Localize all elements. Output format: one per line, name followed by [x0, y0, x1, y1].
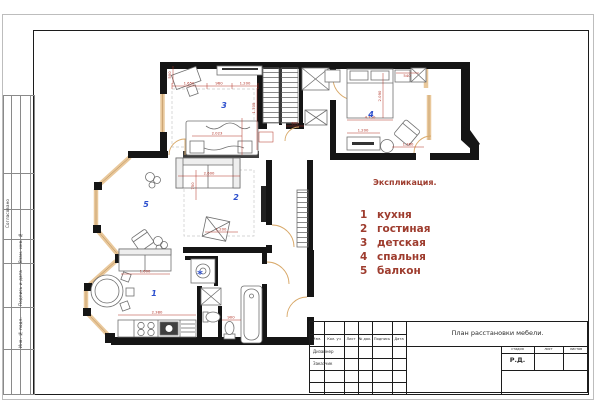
tb-sheet-header: лист — [534, 347, 563, 351]
wardrobe — [281, 68, 298, 123]
hall-closet-x — [305, 110, 327, 125]
legend-item: 5 балкон — [358, 264, 498, 278]
bathtub — [241, 286, 262, 343]
dining-table — [91, 275, 123, 307]
tb-col-izm: Изм. — [310, 337, 324, 341]
dimension-label: 2.600 — [204, 171, 215, 176]
dimension-label: 750 — [190, 182, 195, 190]
tb-stage-value: Р.Д. — [501, 356, 534, 364]
plan-marks: * — [197, 268, 203, 281]
legend-item-name: гостиная — [377, 222, 430, 236]
dimension-label: 1.380 — [403, 142, 414, 147]
dimension-label: 2.023 — [212, 131, 223, 136]
armchair-bay — [131, 229, 154, 252]
washer-asterisk-mark: * — [197, 268, 203, 281]
title-block-line — [310, 358, 406, 359]
title-block-line — [310, 382, 406, 383]
chair — [121, 272, 131, 282]
legend-item-name: балкон — [377, 264, 421, 278]
nightstand — [325, 70, 340, 82]
kitchen-counter — [118, 320, 196, 337]
toilet — [203, 312, 220, 322]
tb-col-list: Лист — [344, 337, 358, 341]
room-number-labels: 34251 — [143, 101, 374, 298]
hall-wardrobe — [297, 190, 308, 247]
legend-item: 3 детская — [358, 236, 498, 250]
chair — [120, 301, 130, 311]
toilet — [224, 322, 235, 340]
title-block: Изм. Кол. уч Лист № док. Подпись Дата Ди… — [309, 321, 588, 393]
dimension-label: 1.200 — [240, 81, 251, 86]
legend-item: 1 кухня — [358, 208, 498, 222]
title-block-line — [501, 353, 589, 354]
title-block-line — [310, 370, 406, 371]
legend-item-number: 4 — [358, 250, 377, 264]
sheet-title: План расстановки мебели. — [406, 329, 589, 337]
legend-items: 1 кухня 2 гостиная 3 детская 4 спальня 5… — [358, 208, 498, 278]
tb-designer-label: Дизайнер — [313, 349, 334, 354]
plant — [146, 173, 161, 189]
room-number-1: 1 — [151, 289, 157, 298]
water-heater — [201, 288, 221, 305]
washing-machine — [191, 259, 215, 283]
tb-col-dok: № док. — [358, 337, 372, 341]
tv-living — [261, 186, 266, 222]
tv-on-dresser — [352, 142, 374, 145]
chair — [126, 288, 134, 296]
dimension-label: 1.600 — [140, 269, 151, 274]
wardrobe — [263, 68, 279, 123]
legend-item: 4 спальня — [358, 250, 498, 264]
title-block-line — [501, 370, 589, 371]
legend-item-name: детская — [377, 236, 426, 250]
shelf — [217, 66, 262, 75]
legend-item-number: 3 — [358, 236, 377, 250]
room-number-2: 2 — [233, 193, 239, 202]
shelf-bar — [222, 68, 258, 70]
dimension-label: 600 — [291, 121, 299, 126]
dimension-label: 1.200 — [216, 227, 227, 232]
dimension-label: 1.705 — [251, 102, 256, 113]
dimension-label: 1.200 — [358, 128, 369, 133]
dimension-label: 960 — [215, 81, 223, 86]
dimension-label: 500 — [167, 71, 172, 79]
dimension-label: 2.380 — [152, 310, 163, 315]
legend-item-number: 5 — [358, 264, 377, 278]
closet-x — [411, 68, 426, 82]
legend-item-number: 1 — [358, 208, 377, 222]
tb-stage-header: стадия — [501, 347, 534, 351]
legend-item-number: 2 — [358, 222, 377, 236]
room-number-3: 3 — [221, 101, 227, 110]
tb-col-podpis: Подпись — [372, 337, 392, 341]
tb-col-koluch: Кол. уч — [324, 337, 344, 341]
legend-title: Экспликация. — [373, 178, 498, 187]
dimension-label: 540 — [403, 73, 411, 78]
room-number-5: 5 — [143, 200, 149, 209]
legend-item-name: спальня — [377, 250, 426, 264]
pouf — [381, 140, 394, 153]
tb-col-data: Дата — [392, 337, 406, 341]
dimension-label: 2.090 — [377, 90, 382, 101]
dimension-label: 1.650 — [184, 81, 195, 86]
bed-childrens — [186, 121, 258, 155]
drawing-sheet: Согласовано Взам. инв. № Подпись и дата … — [0, 0, 600, 419]
room-number-4: 4 — [367, 110, 374, 119]
legend-item: 2 гостиная — [358, 222, 498, 236]
tb-client-label: Заказчик — [313, 361, 332, 366]
legend-item-name: кухня — [377, 208, 412, 222]
legend: Экспликация. 1 кухня 2 гостиная 3 детска… — [358, 178, 498, 278]
tb-sheets-header: листов — [563, 347, 589, 351]
dimension-label: 900 — [227, 315, 235, 320]
title-block-line — [310, 334, 406, 335]
